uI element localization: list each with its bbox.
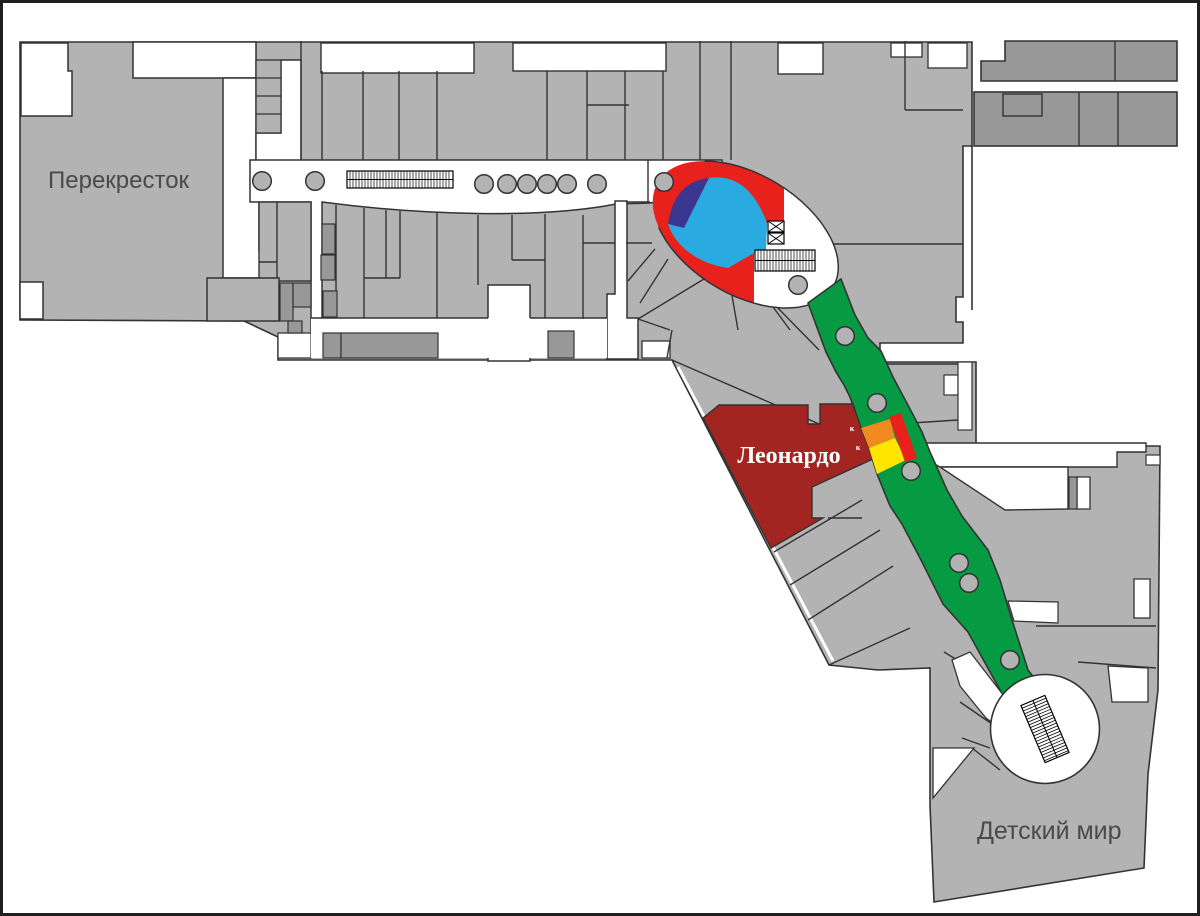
svg-text:Леонардо: Леонардо bbox=[737, 443, 840, 469]
svg-text:Перекресток: Перекресток bbox=[48, 167, 190, 194]
svg-text:к: к bbox=[856, 443, 861, 452]
svg-text:к: к bbox=[850, 424, 855, 433]
svg-text:Детский мир: Детский мир bbox=[977, 817, 1122, 845]
